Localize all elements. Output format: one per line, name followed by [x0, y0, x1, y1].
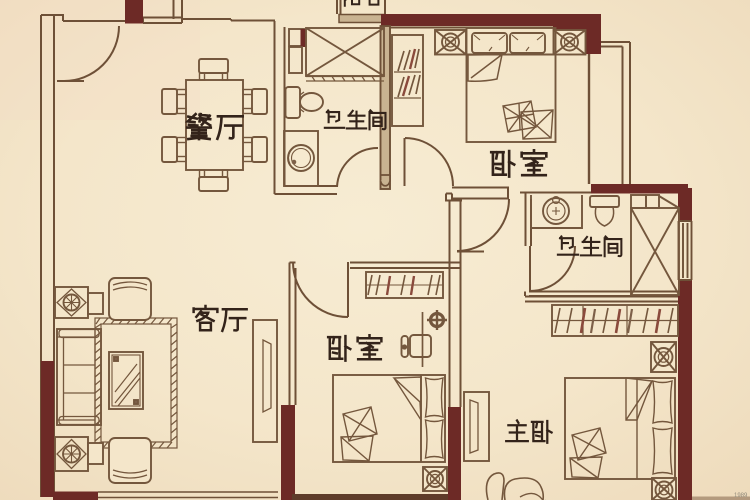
- svg-text:1989: 1989: [734, 493, 748, 499]
